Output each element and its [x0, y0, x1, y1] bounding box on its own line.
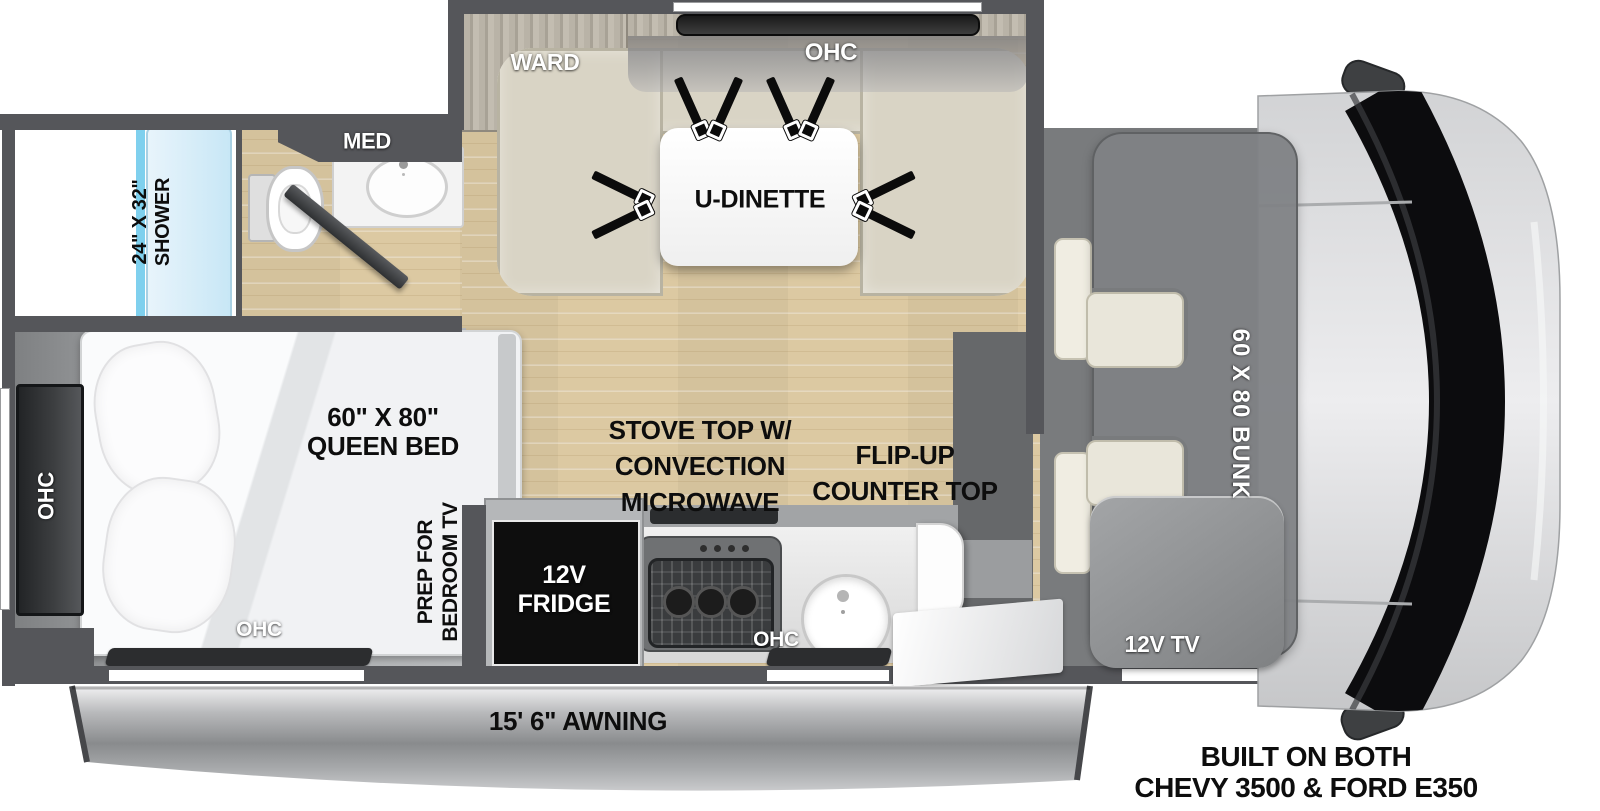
wall-bath-bedroom: [2, 316, 462, 332]
bedroom-ohc-side-label: OHC: [33, 472, 58, 520]
wall-corner-bottom-left: [2, 628, 94, 678]
bed-word-text: QUEEN BED: [307, 432, 459, 461]
rv-floorplan: WARD OHC U-DINETTE MED 24" X 32" SHOWER …: [0, 0, 1600, 811]
awning-label: 15' 6" AWNING: [489, 707, 667, 737]
shower-label: 24" X 32" SHOWER: [129, 178, 175, 266]
flip-up-counter-label: FLIP-UP COUNTER TOP: [812, 437, 997, 509]
bunk-label: 60 X 80 BUNK: [1226, 329, 1254, 500]
shower-word-text: SHOWER: [152, 178, 175, 266]
bedroom-ohc-foot-label: OHC: [236, 618, 282, 642]
bed-dim-text: 60" X 80": [307, 403, 459, 432]
stove-line3: MICROWAVE: [609, 484, 792, 520]
wall-top-bath: [0, 114, 462, 130]
flip-up-counter: [916, 523, 964, 621]
shower-dim-text: 24" X 32": [129, 178, 152, 266]
stove-burner: [695, 586, 727, 618]
chassis-note-line2: CHEVY 3500 & FORD E350: [1134, 772, 1477, 803]
bedroom-tv-prep-label: PREP FOR BEDROOM TV: [413, 502, 463, 641]
dinette-window-slot: [676, 14, 980, 36]
med-cabinet-label: MED: [343, 128, 391, 153]
awning-fabric: [72, 686, 1090, 791]
stove-burner: [663, 586, 695, 618]
wall-right-main: [1026, 0, 1044, 434]
bedroom-foot-cabinet-mat: [105, 648, 374, 666]
kitchen-faucet: [837, 590, 849, 602]
stove-line2: CONVECTION: [609, 448, 792, 484]
stove-line1: STOVE TOP W/: [609, 412, 792, 448]
fridge-line2: FRIDGE: [518, 590, 611, 619]
tv-prep-line2: BEDROOM TV: [438, 502, 463, 641]
flip-line1: FLIP-UP: [812, 437, 997, 473]
queen-bed-label: 60" X 80" QUEEN BED: [307, 403, 459, 461]
chassis-note: BUILT ON BOTH CHEVY 3500 & FORD E350: [1134, 741, 1477, 803]
fridge-label: 12V FRIDGE: [518, 561, 611, 619]
tv-prep-line1: PREP FOR: [413, 502, 438, 641]
wardrobe-label: WARD: [510, 49, 579, 75]
wall-bed-kitchen: [462, 505, 486, 670]
awning-svg: [55, 680, 1105, 811]
stove-knob: [700, 545, 707, 552]
dinette-ohc-label: OHC: [805, 39, 857, 67]
dinette-table-label: U-DINETTE: [695, 186, 826, 215]
flip-line2: COUNTER TOP: [812, 473, 997, 509]
fridge-line1: 12V: [518, 561, 611, 590]
wall-ward-left: [448, 0, 464, 130]
driver-seat-cushion: [1086, 292, 1184, 368]
stove-burner: [727, 586, 759, 618]
stove-label: STOVE TOP W/ CONVECTION MICROWAVE: [609, 412, 792, 520]
kitchen-ohc-label: OHC: [753, 628, 799, 652]
window-top-dinette: [673, 2, 982, 12]
cab-tv-label: 12V TV: [1125, 631, 1200, 657]
entry-landing: [956, 540, 1032, 598]
window-bedroom-left: [0, 388, 10, 610]
chassis-note-line1: BUILT ON BOTH: [1134, 741, 1477, 772]
entry-steps: [893, 599, 1063, 688]
